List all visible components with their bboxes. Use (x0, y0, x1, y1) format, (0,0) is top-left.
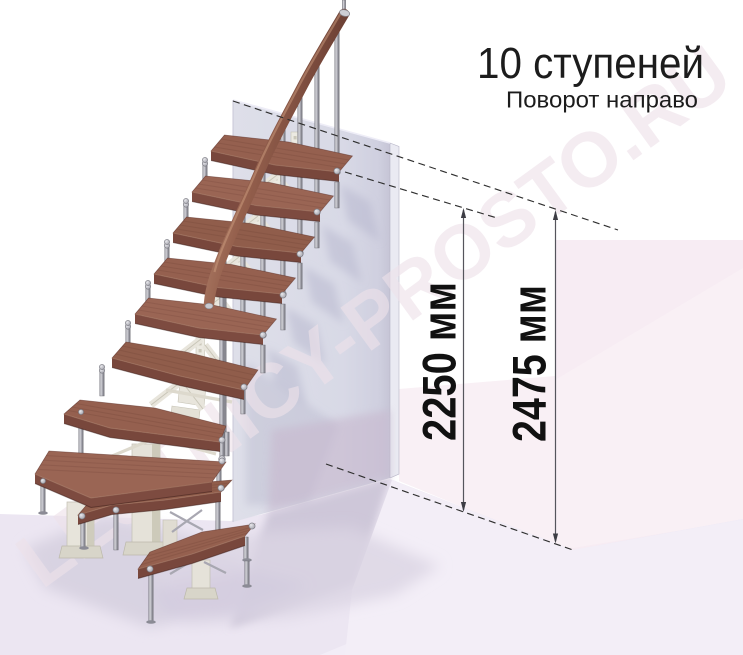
svg-text:10 ступеней: 10 ступеней (477, 39, 704, 88)
svg-text:2475 мм: 2475 мм (503, 285, 556, 442)
svg-text:Поворот направо: Поворот направо (506, 87, 698, 113)
svg-text:2250 мм: 2250 мм (413, 282, 466, 441)
